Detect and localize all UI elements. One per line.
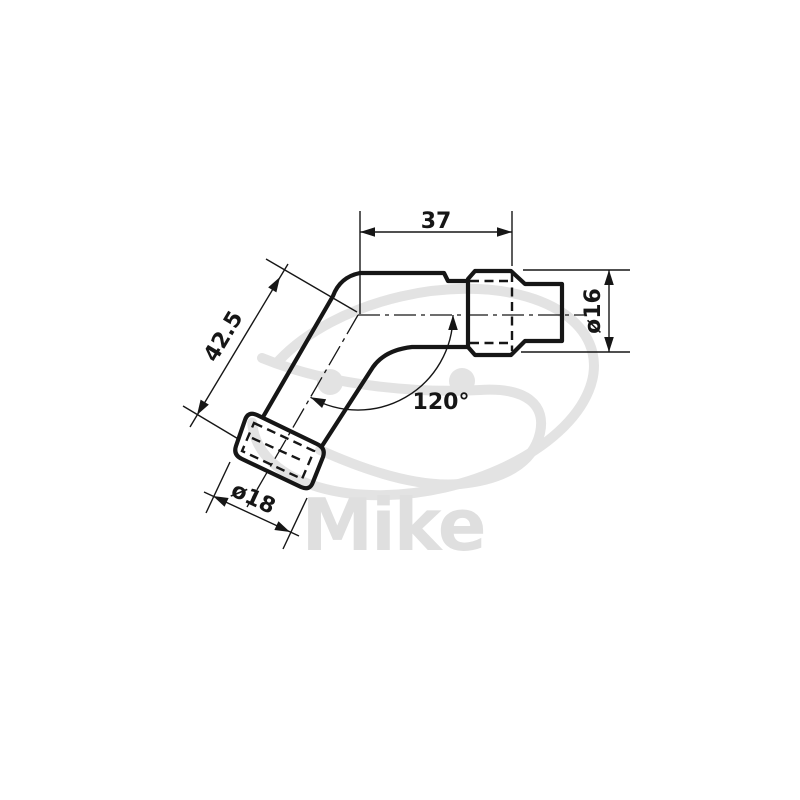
dimension-body-length: 42.5 (183, 259, 357, 440)
ext-line (183, 406, 240, 440)
watermark-dot-left (317, 369, 343, 395)
barrel-top-edge (360, 273, 468, 281)
arrowhead (497, 227, 512, 237)
spark-plug-cap-drawing: Mike 37 (0, 0, 800, 800)
arrowhead (193, 400, 209, 418)
dimension-angle-label: 120° (413, 390, 470, 415)
arrowhead (604, 270, 614, 285)
arrowhead (268, 275, 284, 293)
arrowhead (211, 492, 229, 507)
watermark-text: Mike (301, 483, 484, 567)
ext-line (266, 259, 357, 312)
arrowhead (448, 315, 458, 330)
arrowhead (604, 337, 614, 352)
dimension-body-length-label: 42.5 (199, 307, 248, 366)
technical-drawing-page: Mike 37 (0, 0, 800, 800)
dimension-top-width-label: 37 (421, 209, 452, 234)
ext-line (206, 462, 230, 513)
dimension-terminal-diameter-label: ø16 (581, 288, 606, 334)
arrowhead (360, 227, 375, 237)
terminal-socket (468, 271, 562, 355)
dimension-boot-diameter-label: ø18 (227, 478, 279, 520)
dimension-angle: 120° (308, 315, 469, 415)
